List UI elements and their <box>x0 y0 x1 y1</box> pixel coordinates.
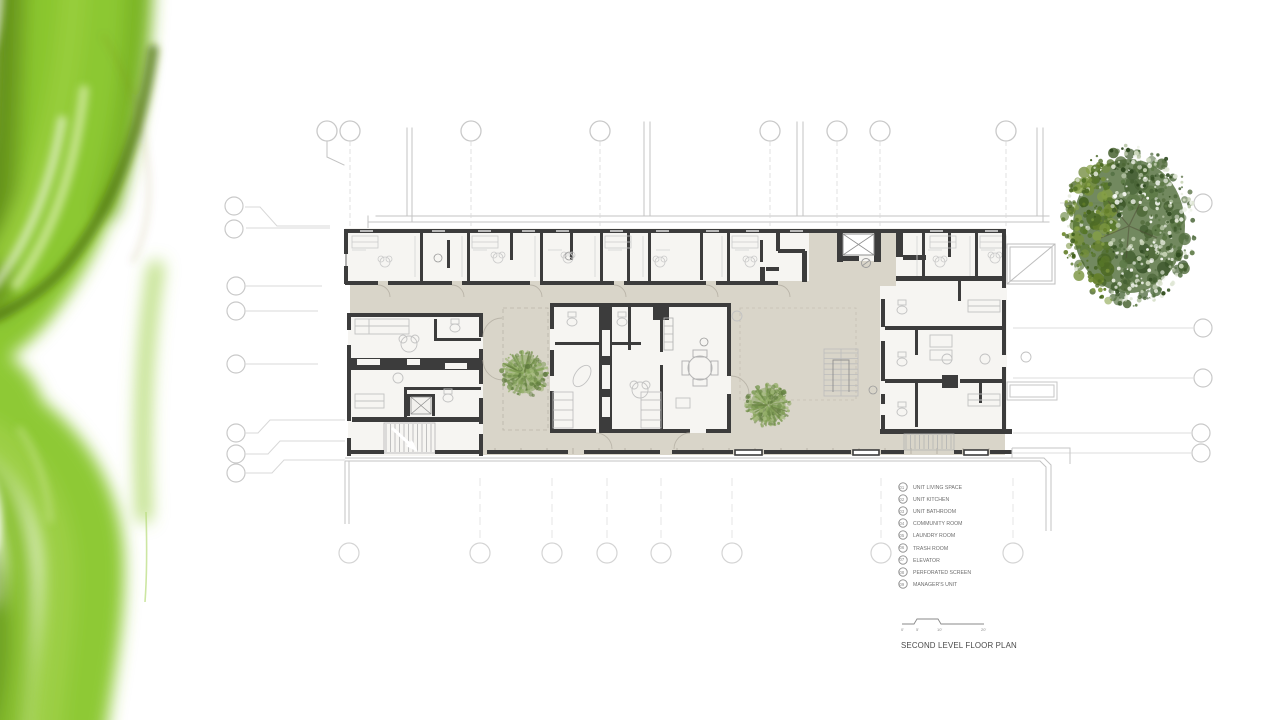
svg-text:02: 02 <box>900 497 905 502</box>
svg-text:TRASH ROOM: TRASH ROOM <box>913 546 948 552</box>
svg-text:10': 10' <box>937 627 942 632</box>
svg-text:01: 01 <box>900 485 905 490</box>
svg-text:ELEVATOR: ELEVATOR <box>913 558 940 564</box>
svg-text:UNIT LIVING SPACE: UNIT LIVING SPACE <box>913 485 963 491</box>
svg-text:PERFORATED SCREEN: PERFORATED SCREEN <box>913 570 971 576</box>
svg-text:UNIT BATHROOM: UNIT BATHROOM <box>913 509 956 515</box>
svg-text:03: 03 <box>900 509 905 514</box>
svg-text:05: 05 <box>900 533 905 538</box>
svg-text:MANAGER'S UNIT: MANAGER'S UNIT <box>913 582 958 588</box>
svg-text:09: 09 <box>900 582 905 587</box>
svg-text:0': 0' <box>901 627 904 632</box>
svg-text:20': 20' <box>981 627 986 632</box>
svg-text:06: 06 <box>900 545 905 550</box>
svg-text:COMMUNITY ROOM: COMMUNITY ROOM <box>913 521 962 527</box>
svg-text:08: 08 <box>900 570 905 575</box>
svg-text:LAUNDRY ROOM: LAUNDRY ROOM <box>913 533 955 539</box>
svg-text:SECOND LEVEL FLOOR PLAN: SECOND LEVEL FLOOR PLAN <box>901 641 1017 650</box>
svg-text:UNIT KITCHEN: UNIT KITCHEN <box>913 497 949 503</box>
svg-text:07: 07 <box>900 557 905 562</box>
svg-text:5': 5' <box>916 627 919 632</box>
svg-text:04: 04 <box>900 521 905 526</box>
